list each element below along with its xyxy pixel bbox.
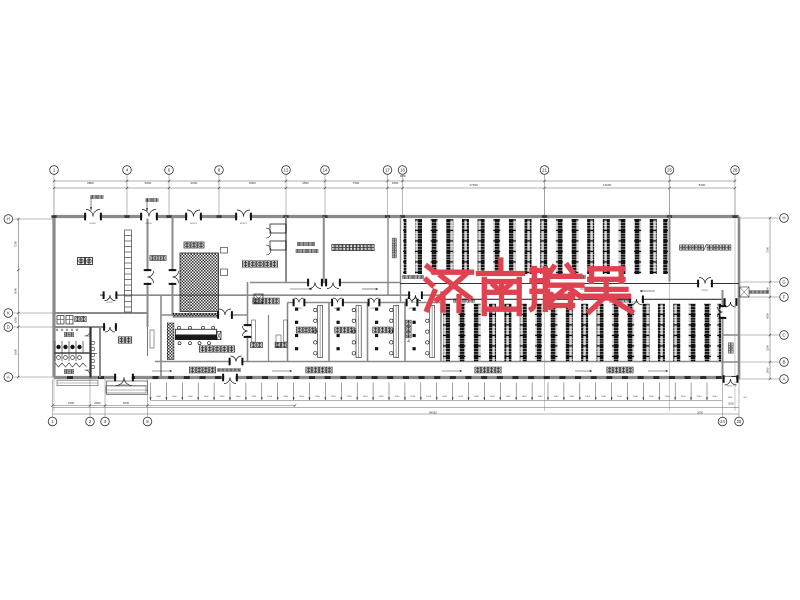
svg-text:2000: 2000	[94, 401, 101, 405]
svg-text:2080: 2080	[347, 396, 353, 398]
svg-text:7200: 7200	[14, 240, 18, 247]
svg-text:4500: 4500	[302, 181, 309, 185]
svg-text:1600: 1600	[553, 396, 559, 398]
svg-text:8000: 8000	[249, 181, 256, 185]
svg-text:1600: 1600	[394, 396, 400, 398]
svg-text:21: 21	[542, 168, 547, 173]
svg-text:M7527: M7527	[727, 386, 734, 388]
svg-text:M7527: M7527	[371, 308, 378, 310]
svg-text:18: 18	[400, 168, 405, 173]
svg-text:2080: 2080	[220, 396, 226, 398]
svg-text:25: 25	[737, 419, 742, 424]
svg-text:1800: 1800	[392, 181, 399, 185]
svg-text:2030: 2030	[728, 402, 734, 406]
svg-text:4: 4	[407, 339, 410, 344]
svg-text:1600: 1600	[363, 396, 369, 398]
svg-text:5000: 5000	[145, 181, 152, 185]
svg-text:M7527: M7527	[296, 308, 303, 310]
svg-text:2080: 2080	[538, 396, 544, 398]
svg-text:1600: 1600	[172, 396, 178, 398]
svg-text:4500: 4500	[765, 313, 769, 319]
svg-text:1600: 1600	[649, 396, 655, 398]
svg-text:2000: 2000	[765, 367, 769, 373]
svg-text:M7527: M7527	[409, 308, 416, 310]
svg-text:2080: 2080	[410, 396, 416, 398]
svg-text:2080: 2080	[474, 396, 480, 398]
svg-text:1600: 1600	[617, 396, 623, 398]
svg-text:M7527: M7527	[412, 302, 419, 304]
svg-text:1800: 1800	[14, 316, 18, 323]
svg-text:25: 25	[667, 168, 672, 173]
svg-text:2080: 2080	[601, 396, 607, 398]
svg-text:F: F	[783, 295, 786, 300]
svg-text:1: 1	[315, 328, 318, 334]
svg-text:1800: 1800	[728, 397, 734, 399]
svg-text:2080: 2080	[506, 396, 512, 398]
svg-text:1600: 1600	[235, 396, 241, 398]
svg-text:A: A	[7, 375, 10, 380]
svg-text:1600: 1600	[204, 396, 210, 398]
svg-text:2080: 2080	[156, 396, 162, 398]
svg-text:2080: 2080	[188, 396, 194, 398]
svg-text:28: 28	[733, 168, 738, 173]
svg-text:H: H	[782, 216, 785, 221]
svg-text:7500: 7500	[765, 247, 769, 253]
svg-text:6000: 6000	[191, 181, 198, 185]
svg-text:C: C	[782, 333, 785, 338]
svg-text:2: 2	[354, 328, 357, 334]
svg-text:M7527: M7527	[702, 290, 709, 292]
svg-text:8450: 8450	[400, 174, 406, 178]
svg-text:8300: 8300	[699, 183, 706, 187]
svg-text:D: D	[7, 325, 10, 330]
svg-text:9800: 9800	[87, 181, 94, 185]
svg-text:2080: 2080	[633, 396, 639, 398]
svg-text:A: A	[783, 377, 786, 382]
svg-text:2080: 2080	[569, 396, 575, 398]
svg-text:14600: 14600	[603, 183, 612, 187]
svg-text:1600: 1600	[490, 396, 496, 398]
svg-text:1600: 1600	[585, 396, 591, 398]
svg-text:17: 17	[385, 168, 390, 173]
svg-text:M7527: M7527	[121, 385, 128, 387]
svg-text:2080: 2080	[283, 396, 289, 398]
svg-text:24: 24	[720, 419, 725, 424]
svg-text:M7527: M7527	[240, 223, 247, 225]
svg-text:M7527: M7527	[90, 223, 97, 225]
svg-text:4300: 4300	[68, 401, 75, 405]
svg-text:3: 3	[392, 328, 395, 334]
svg-text:2080: 2080	[697, 396, 703, 398]
svg-text:14: 14	[323, 168, 328, 173]
svg-text:H: H	[7, 217, 10, 222]
svg-text:2000: 2000	[697, 410, 703, 414]
svg-text:M7527: M7527	[632, 302, 639, 304]
svg-text:12: 12	[284, 168, 289, 173]
svg-text:M7527: M7527	[107, 302, 114, 304]
svg-text:1600: 1600	[299, 396, 305, 398]
svg-text:84592: 84592	[429, 410, 437, 414]
svg-text:B: B	[783, 360, 786, 365]
svg-text:1600: 1600	[331, 396, 337, 398]
svg-text:1600: 1600	[426, 396, 432, 398]
svg-text:1600: 1600	[681, 396, 687, 398]
svg-text:6300: 6300	[14, 348, 18, 355]
svg-text:5600: 5600	[123, 401, 130, 405]
svg-text:2080: 2080	[379, 396, 385, 398]
svg-text:1600: 1600	[267, 396, 273, 398]
svg-text:M7527: M7527	[190, 223, 197, 225]
svg-text:1600: 1600	[712, 396, 718, 398]
svg-text:17350: 17350	[469, 183, 478, 187]
svg-text:2080: 2080	[315, 396, 321, 398]
svg-text:2080: 2080	[251, 396, 257, 398]
svg-text:1600: 1600	[458, 396, 464, 398]
svg-text:2080: 2080	[442, 396, 448, 398]
svg-text:1600: 1600	[522, 396, 528, 398]
svg-text:M7527: M7527	[146, 223, 153, 225]
svg-text:7500: 7500	[353, 181, 360, 185]
svg-text:K: K	[7, 311, 10, 316]
svg-text:G: G	[782, 280, 785, 285]
svg-text:2080: 2080	[665, 396, 671, 398]
svg-text:5000: 5000	[14, 287, 18, 294]
svg-text:3200: 3200	[765, 345, 769, 351]
svg-text:M7527: M7527	[334, 308, 341, 310]
